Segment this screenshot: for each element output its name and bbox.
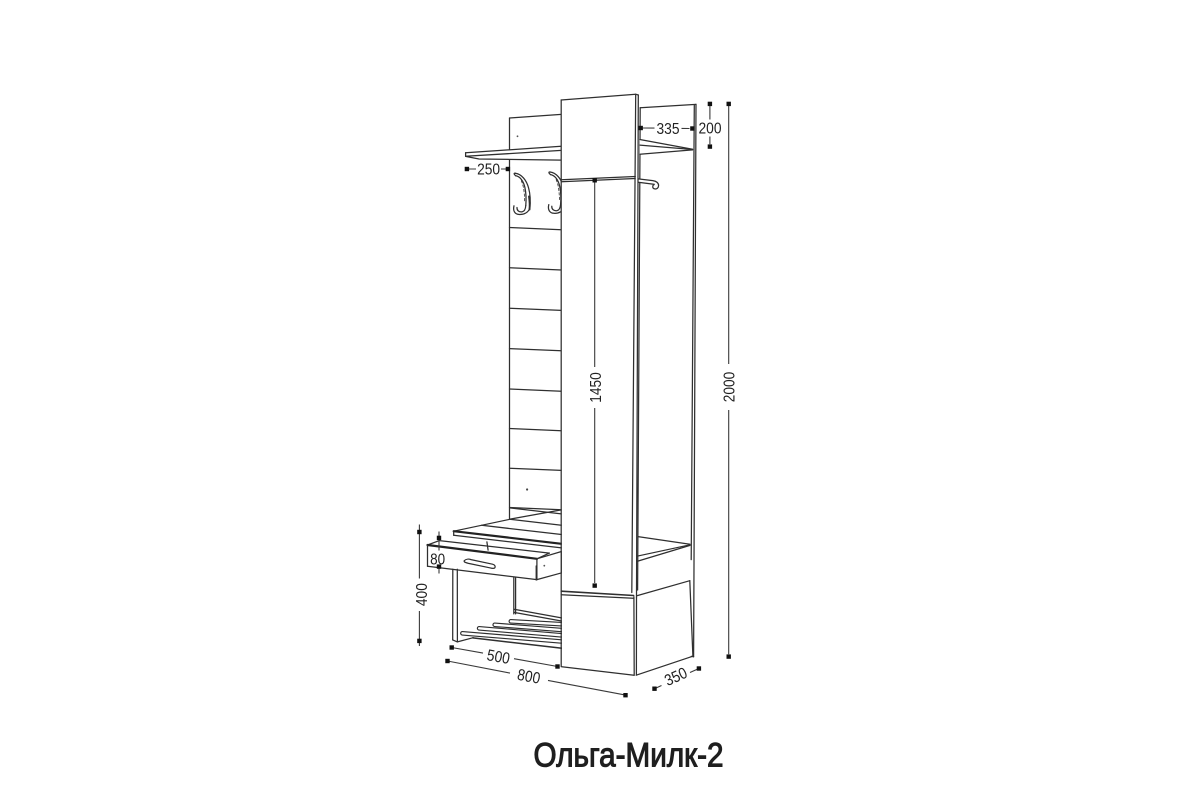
- svg-text:2000: 2000: [722, 372, 739, 403]
- svg-text:Ольга-Милк-2: Ольга-Милк-2: [534, 737, 724, 775]
- svg-text:200: 200: [699, 120, 722, 137]
- svg-text:335: 335: [657, 121, 680, 138]
- svg-text:80: 80: [430, 552, 445, 569]
- svg-text:800: 800: [516, 667, 542, 688]
- svg-text:250: 250: [477, 162, 500, 179]
- svg-text:350: 350: [662, 665, 690, 690]
- svg-text:400: 400: [414, 583, 431, 606]
- svg-text:500: 500: [485, 647, 511, 668]
- svg-text:1450: 1450: [588, 372, 605, 403]
